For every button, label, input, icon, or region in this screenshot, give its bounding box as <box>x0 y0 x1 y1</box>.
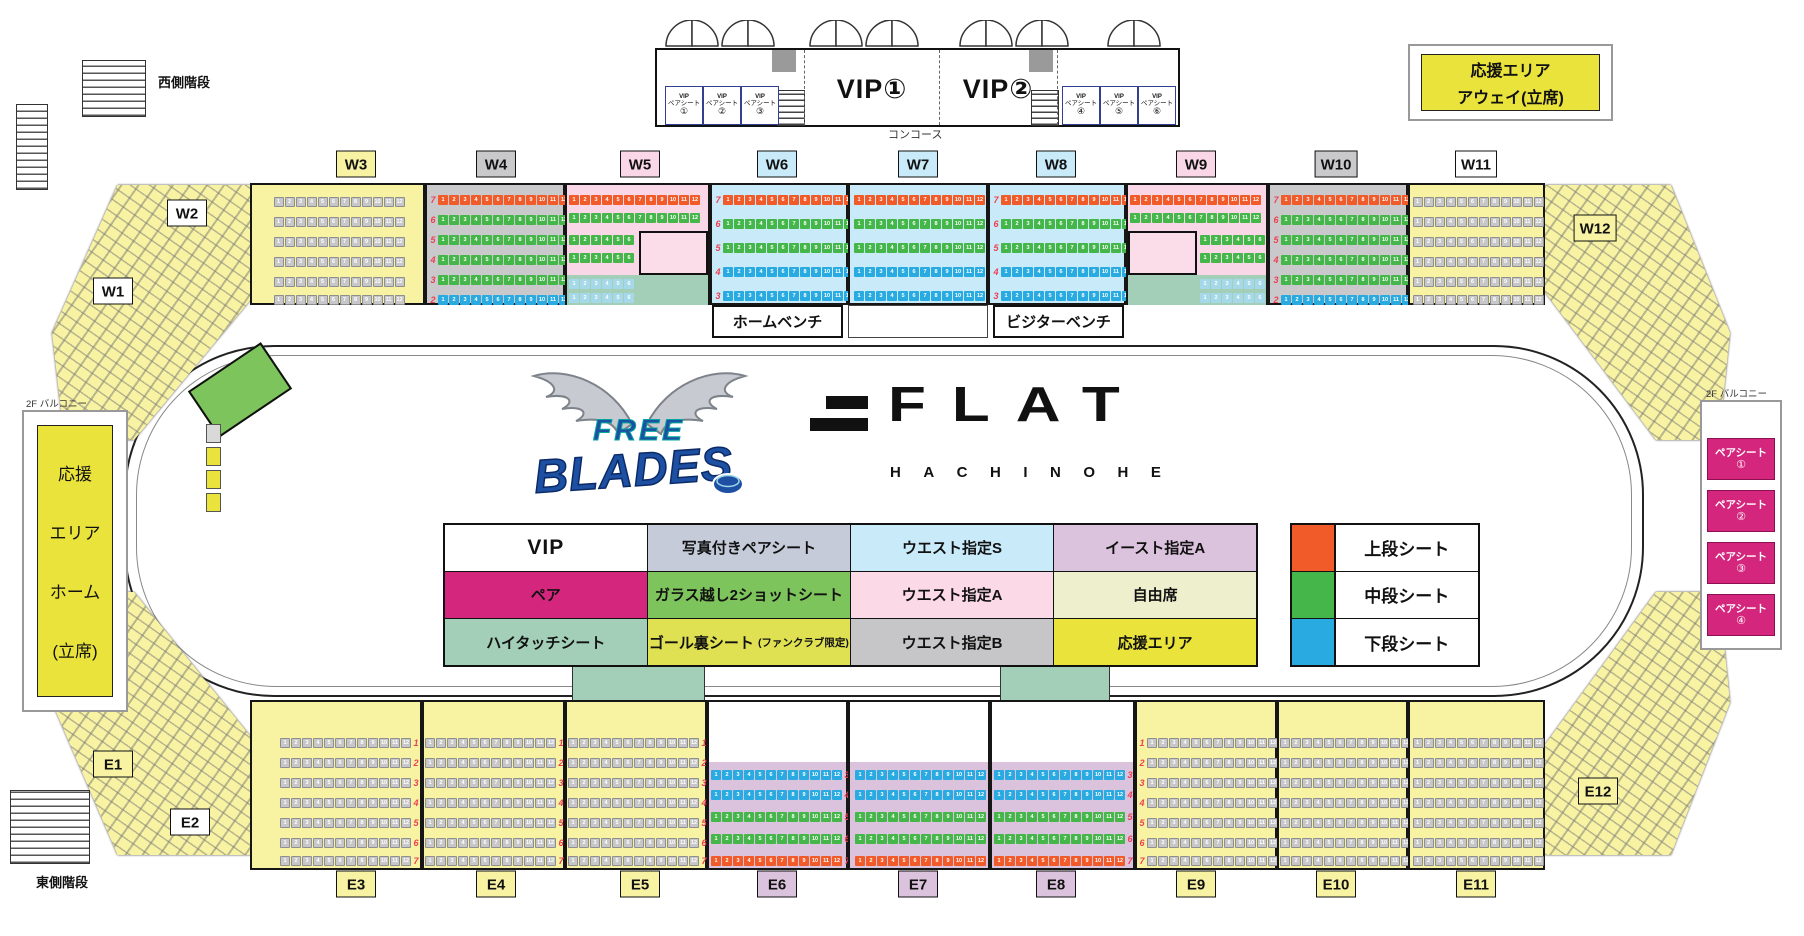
seat: 6 <box>1468 758 1478 768</box>
seat: 11 <box>965 770 975 780</box>
seat: 6 <box>493 195 503 205</box>
seat: 5 <box>1174 213 1184 223</box>
seat: 1 <box>568 818 578 828</box>
seat: 3 <box>590 738 600 748</box>
section-label-e8: E8 <box>1036 871 1076 898</box>
seat-row: 5123456789101112 <box>1272 235 1413 245</box>
seat: 9 <box>811 195 821 205</box>
seat: 4 <box>307 295 317 305</box>
seat: 1 <box>568 798 578 808</box>
seat: 11 <box>965 812 975 822</box>
seat: 11 <box>1391 195 1401 205</box>
seat: 9 <box>513 738 523 748</box>
seat: 8 <box>1078 243 1088 253</box>
tier-label: 下段シート <box>1336 619 1479 665</box>
seat: 6 <box>1468 738 1478 748</box>
seat: 9 <box>368 798 378 808</box>
seat: 1 <box>568 778 578 788</box>
seat: 3 <box>1302 738 1312 748</box>
seat: 1 <box>1147 856 1157 866</box>
seat: 11 <box>384 277 394 287</box>
seat: 1 <box>1413 838 1423 848</box>
seat: 9 <box>1501 217 1511 227</box>
seat: 1 <box>1280 838 1290 848</box>
seat: 8 <box>645 738 655 748</box>
seat: 9 <box>1369 195 1379 205</box>
seat: 9 <box>513 778 523 788</box>
seat: 7 <box>921 856 931 866</box>
row-number: 3 <box>1126 770 1134 780</box>
seat: 3 <box>1302 798 1312 808</box>
seat: 10 <box>379 738 389 748</box>
seat: 9 <box>368 818 378 828</box>
seat: 12 <box>546 738 556 748</box>
row-number: 5 <box>557 818 565 828</box>
seat: 6 <box>1335 798 1345 808</box>
row-number: 3 <box>714 291 722 301</box>
seat: 4 <box>1314 295 1324 305</box>
seat: 2 <box>1424 798 1434 808</box>
seat: 1 <box>855 812 865 822</box>
seat: 12 <box>546 778 556 788</box>
seat: 9 <box>1089 267 1099 277</box>
seat: 3 <box>1303 275 1313 285</box>
seat: 5 <box>482 275 492 285</box>
seat: 1 <box>1280 738 1290 748</box>
seat: 2 <box>734 267 744 277</box>
seat: 5 <box>318 237 328 247</box>
seat: 3 <box>302 838 312 848</box>
seat: 2 <box>285 295 295 305</box>
seat: 9 <box>1501 197 1511 207</box>
seat: 9 <box>1368 778 1378 788</box>
seat: 1 <box>1413 237 1423 247</box>
seat: 1 <box>1413 738 1423 748</box>
seat: 2 <box>865 243 875 253</box>
seat: 3 <box>296 237 306 247</box>
seat: 4 <box>601 758 611 768</box>
seat: 5 <box>1324 856 1334 866</box>
seat: 3 <box>1023 243 1033 253</box>
seat: 10 <box>667 778 677 788</box>
row-number: 7 <box>557 856 565 866</box>
seat: 3 <box>1222 235 1232 245</box>
seat: 2 <box>449 215 459 225</box>
seat: 5 <box>1244 235 1254 245</box>
seat: 4 <box>1034 267 1044 277</box>
seat: 7 <box>1479 798 1489 808</box>
seat: 4 <box>1034 291 1044 301</box>
seat: 9 <box>362 197 372 207</box>
seat: 1 <box>994 812 1004 822</box>
seat: 10 <box>1512 257 1522 267</box>
seat: 5 <box>612 798 622 808</box>
vip-pair-seat-②: VIPペアシート② <box>703 86 741 125</box>
seat: 1 <box>1001 195 1011 205</box>
seat: 4 <box>602 195 612 205</box>
row-number: 6 <box>557 838 565 848</box>
seat: 3 <box>302 818 312 828</box>
scorekeeper-box <box>848 305 988 338</box>
seat: 2 <box>579 838 589 848</box>
seat: 8 <box>357 856 367 866</box>
seat: 11 <box>1523 217 1533 227</box>
seat: 2 <box>722 856 732 866</box>
seat: 11 <box>1111 291 1121 301</box>
seat: 9 <box>1235 758 1245 768</box>
seat: 6 <box>623 738 633 748</box>
standing-spot <box>206 447 221 466</box>
seat: 1 <box>1001 243 1011 253</box>
seat: 10 <box>379 856 389 866</box>
seat: 11 <box>1523 818 1533 828</box>
section-label-e2: E2 <box>170 809 210 836</box>
seat: 6 <box>623 818 633 828</box>
seat: 2 <box>1158 758 1168 768</box>
seat: 1 <box>855 834 865 844</box>
seat: 1 <box>723 291 733 301</box>
seat: 3 <box>460 215 470 225</box>
tier-swatch <box>1292 572 1334 618</box>
seat: 4 <box>458 838 468 848</box>
seat: 9 <box>811 243 821 253</box>
seat: 6 <box>909 291 919 301</box>
seat: 5 <box>469 838 479 848</box>
seat: 9 <box>513 838 523 848</box>
seat: 6 <box>624 213 634 223</box>
seat: 2 <box>1158 738 1168 748</box>
seat: 11 <box>390 758 400 768</box>
seat-row: 5123456789101112 <box>1138 818 1279 828</box>
seat: 3 <box>1023 219 1033 229</box>
seat: 8 <box>1490 778 1500 788</box>
seat: 4 <box>1034 219 1044 229</box>
seat: 2 <box>1012 195 1022 205</box>
seat: 10 <box>1246 778 1256 788</box>
seat: 11 <box>1104 856 1114 866</box>
legend-cell: イースト指定A <box>1054 525 1256 571</box>
seat: 9 <box>1501 856 1511 866</box>
seat: 8 <box>1224 818 1234 828</box>
seat: 6 <box>1056 267 1066 277</box>
seat: 5 <box>1325 275 1335 285</box>
seat: 4 <box>888 790 898 800</box>
seat: 2 <box>1292 195 1302 205</box>
seat: 5 <box>898 243 908 253</box>
seat: 10 <box>810 856 820 866</box>
seat: 1 <box>855 856 865 866</box>
seat: 5 <box>482 235 492 245</box>
row-number: 4 <box>1272 255 1280 265</box>
seat: 10 <box>668 213 678 223</box>
tier-label: 中段シート <box>1336 572 1479 618</box>
seat: 5 <box>469 778 479 788</box>
seat: 6 <box>1336 255 1346 265</box>
seat: 9 <box>942 195 952 205</box>
seat: 7 <box>777 770 787 780</box>
seat: 3 <box>1222 293 1232 303</box>
seat: 10 <box>524 838 534 848</box>
seat: 1 <box>854 267 864 277</box>
free-blades-logo: FREE BLADES <box>512 362 767 522</box>
seat: 6 <box>1049 856 1059 866</box>
legend-cell: ゴール裏シート(ファンクラブ限定) <box>648 619 850 665</box>
seat: 8 <box>1357 738 1367 748</box>
seat: 10 <box>1512 818 1522 828</box>
seat: 10 <box>524 856 534 866</box>
seat: 10 <box>1380 295 1390 305</box>
seat: 10 <box>1246 856 1256 866</box>
seat: 1 <box>711 790 721 800</box>
seat: 5 <box>612 758 622 768</box>
seat: 3 <box>877 790 887 800</box>
seat: 6 <box>623 856 633 866</box>
tier-swatch <box>1292 525 1334 571</box>
seat: 10 <box>1512 295 1522 305</box>
seat: 7 <box>789 195 799 205</box>
seat: 10 <box>954 812 964 822</box>
seat: 5 <box>1244 293 1254 303</box>
seat: 12 <box>976 834 986 844</box>
row-number: 5 <box>1272 235 1280 245</box>
seat: 1 <box>1280 798 1290 808</box>
seat: 1 <box>274 217 284 227</box>
seat: 3 <box>302 738 312 748</box>
seat: 1 <box>1413 257 1423 267</box>
seat: 6 <box>1335 758 1345 768</box>
seat: 7 <box>346 778 356 788</box>
seat: 1 <box>569 195 579 205</box>
seat: 8 <box>351 257 361 267</box>
seat: 6 <box>910 790 920 800</box>
seat: 10 <box>822 291 832 301</box>
seat: 6 <box>480 838 490 848</box>
seat-row: 1234567891011127 <box>711 856 852 866</box>
seat: 5 <box>469 856 479 866</box>
seat: 2 <box>436 856 446 866</box>
seat: 7 <box>504 235 514 245</box>
row-number: 5 <box>714 243 722 253</box>
seat: 1 <box>994 856 1004 866</box>
seat: 11 <box>965 834 975 844</box>
seat: 8 <box>351 197 361 207</box>
seat: 9 <box>362 237 372 247</box>
seat: 1 <box>568 758 578 768</box>
seat: 5 <box>755 856 765 866</box>
seat: 7 <box>1479 217 1489 227</box>
seat: 7 <box>1479 197 1489 207</box>
seat: 11 <box>679 195 689 205</box>
seat: 11 <box>535 738 545 748</box>
seat: 11 <box>1390 758 1400 768</box>
seat: 11 <box>1104 790 1114 800</box>
seat: 10 <box>379 818 389 828</box>
seat: 7 <box>1067 243 1077 253</box>
seat: 4 <box>744 790 754 800</box>
seat: 2 <box>866 770 876 780</box>
seat: 11 <box>965 790 975 800</box>
seat: 5 <box>1457 798 1467 808</box>
seat-row: 123456789101112 <box>854 195 986 205</box>
seat: 7 <box>1479 838 1489 848</box>
seat: 4 <box>756 195 766 205</box>
seat: 10 <box>1380 195 1390 205</box>
seat: 11 <box>548 275 558 285</box>
seat: 6 <box>1468 257 1478 267</box>
seat-row: 1234567891011127 <box>568 856 709 866</box>
seat: 2 <box>1291 856 1301 866</box>
seat-row: 1234567891011127 <box>280 856 421 866</box>
seat: 3 <box>1016 834 1026 844</box>
seat: 6 <box>335 778 345 788</box>
row-number: 3 <box>429 275 437 285</box>
concourse-label: コンコース <box>888 126 942 142</box>
seat: 10 <box>537 195 547 205</box>
seat: 2 <box>579 738 589 748</box>
seat: 5 <box>1045 243 1055 253</box>
seat: 12 <box>546 758 556 768</box>
seat-row: 123456789101112 <box>1413 758 1545 768</box>
seat: 7 <box>491 738 501 748</box>
seat: 8 <box>1357 798 1367 808</box>
row-number: 5 <box>412 818 420 828</box>
seat: 4 <box>601 856 611 866</box>
balcony-right-label: 2F バルコニー <box>1706 386 1767 400</box>
seat-row: 1234567891011127 <box>425 856 566 866</box>
seat: 7 <box>1346 798 1356 808</box>
seat: 3 <box>877 812 887 822</box>
seat: 7 <box>920 195 930 205</box>
seat: 5 <box>612 856 622 866</box>
seat: 3 <box>590 758 600 768</box>
seat: 2 <box>291 798 301 808</box>
seat: 4 <box>1446 838 1456 848</box>
seat: 9 <box>1368 758 1378 768</box>
seat: 3 <box>447 738 457 748</box>
seat: 2 <box>1005 812 1015 822</box>
seat: 8 <box>351 295 361 305</box>
seat: 7 <box>1060 790 1070 800</box>
seat: 11 <box>1523 758 1533 768</box>
seat-row: 123456789101112 <box>274 257 406 267</box>
seat: 6 <box>1468 237 1478 247</box>
seat: 4 <box>1313 818 1323 828</box>
seat: 2 <box>865 219 875 229</box>
seat: 6 <box>1335 738 1345 748</box>
standing-spot <box>206 470 221 489</box>
seat: 4 <box>888 834 898 844</box>
seat: 5 <box>767 267 777 277</box>
seat: 8 <box>1358 235 1368 245</box>
seat: 11 <box>1111 243 1121 253</box>
seat: 8 <box>800 291 810 301</box>
seat: 10 <box>537 215 547 225</box>
seat: 2 <box>1424 738 1434 748</box>
seat: 7 <box>1060 834 1070 844</box>
seat: 8 <box>515 295 525 305</box>
seat: 5 <box>1324 778 1334 788</box>
seat: 10 <box>667 838 677 848</box>
seat: 4 <box>601 778 611 788</box>
seat: 11 <box>535 798 545 808</box>
seat: 9 <box>1501 798 1511 808</box>
seat: 2 <box>449 275 459 285</box>
section-label-e10: E10 <box>1316 871 1356 898</box>
seat: 4 <box>888 856 898 866</box>
seat: 12 <box>689 798 699 808</box>
seat: 9 <box>1235 778 1245 788</box>
seat: 3 <box>1435 818 1445 828</box>
seat: 4 <box>1446 818 1456 828</box>
seat: 8 <box>931 219 941 229</box>
seat: 7 <box>1346 778 1356 788</box>
seat: 7 <box>921 812 931 822</box>
seat: 2 <box>1424 778 1434 788</box>
seat-row: 123456789101112 <box>1413 257 1545 267</box>
seat: 5 <box>1191 778 1201 788</box>
seat: 12 <box>401 758 411 768</box>
seat: 1 <box>438 255 448 265</box>
seat: 7 <box>634 778 644 788</box>
seat: 4 <box>744 812 754 822</box>
seat: 12 <box>401 798 411 808</box>
seat-row: 1234567891011123 <box>994 770 1135 780</box>
seat: 5 <box>482 215 492 225</box>
seat: 5 <box>1191 758 1201 768</box>
seat: 4 <box>471 235 481 245</box>
seat: 10 <box>524 798 534 808</box>
seat: 7 <box>1479 237 1489 247</box>
seat: 4 <box>756 291 766 301</box>
home-area-line: 応援 <box>58 460 92 485</box>
seat: 1 <box>723 243 733 253</box>
seat: 2 <box>1158 798 1168 808</box>
seat: 10 <box>1380 215 1390 225</box>
seat: 11 <box>678 856 688 866</box>
seat: 5 <box>1457 818 1467 828</box>
seat-row: 123456789101112 <box>1280 856 1412 866</box>
seat: 9 <box>943 856 953 866</box>
seat: 6 <box>624 293 634 303</box>
seat: 8 <box>1224 838 1234 848</box>
seat: 12 <box>1251 195 1261 205</box>
seat: 1 <box>854 291 864 301</box>
standing-spot <box>206 493 221 512</box>
seat: 2 <box>579 818 589 828</box>
seat: 1 <box>1001 267 1011 277</box>
seat: 5 <box>324 856 334 866</box>
seat: 5 <box>755 770 765 780</box>
seat: 5 <box>318 295 328 305</box>
seat: 10 <box>1379 758 1389 768</box>
seat: 2 <box>865 195 875 205</box>
section-label-e9: E9 <box>1176 871 1216 898</box>
seat: 5 <box>899 834 909 844</box>
seat: 7 <box>634 818 644 828</box>
seat: 2 <box>1141 213 1151 223</box>
seat: 1 <box>1413 217 1423 227</box>
seat: 4 <box>458 758 468 768</box>
seat: 5 <box>1045 267 1055 277</box>
seat-row: 123456789101112 <box>1413 778 1545 788</box>
seat: 2 <box>865 291 875 301</box>
seat: 4 <box>602 279 612 289</box>
seat: 12 <box>1534 295 1544 305</box>
legend-cell: 自由席 <box>1054 572 1256 618</box>
seat: 11 <box>1391 295 1401 305</box>
seat: 3 <box>1302 856 1312 866</box>
seat: 12 <box>975 243 985 253</box>
